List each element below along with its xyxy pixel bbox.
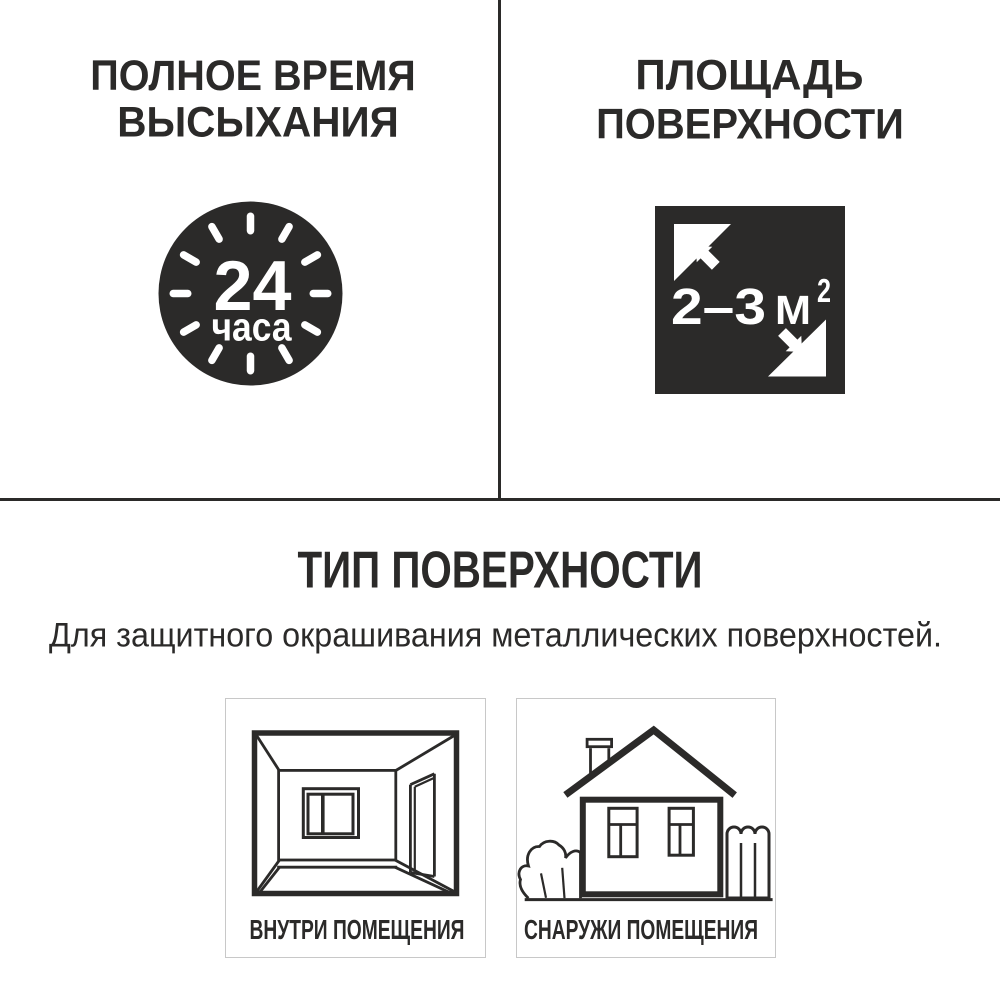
svg-text:Для защитного окрашивания мета: Для защитного окрашивания металлических … [49, 617, 942, 655]
svg-text:ВЫСЫХАНИЯ: ВЫСЫХАНИЯ [117, 100, 399, 147]
svg-text:ВНУТРИ ПОМЕЩЕНИЯ: ВНУТРИ ПОМЕЩЕНИЯ [250, 914, 465, 945]
svg-text:ТИП ПОВЕРХНОСТИ: ТИП ПОВЕРХНОСТИ [298, 542, 703, 600]
svg-text:2: 2 [817, 272, 831, 309]
svg-text:ПЛОЩАДЬ: ПЛОЩАДЬ [635, 52, 863, 99]
svg-text:2–3: 2–3 [671, 278, 766, 335]
svg-text:М: М [775, 287, 811, 333]
svg-text:часа: часа [212, 306, 293, 350]
svg-text:СНАРУЖИ ПОМЕЩЕНИЯ: СНАРУЖИ ПОМЕЩЕНИЯ [524, 914, 758, 945]
svg-text:ПОВЕРХНОСТИ: ПОВЕРХНОСТИ [596, 101, 904, 148]
svg-text:ПОЛНОЕ ВРЕМЯ: ПОЛНОЕ ВРЕМЯ [90, 53, 416, 100]
